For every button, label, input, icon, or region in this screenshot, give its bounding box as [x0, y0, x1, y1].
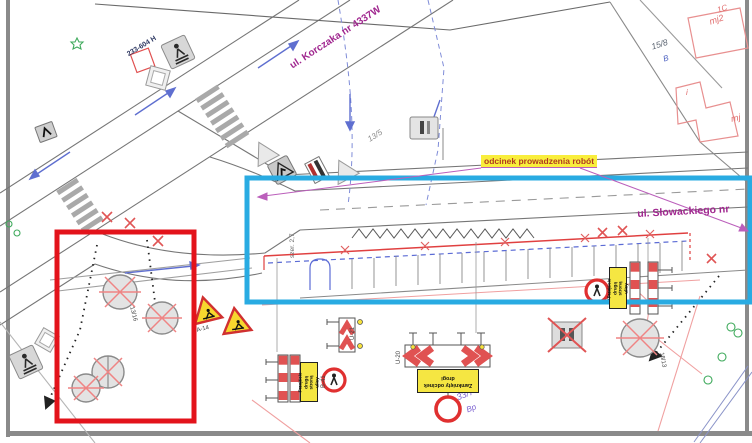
- pedestrian-crossing-sign: [161, 35, 196, 70]
- barrier-planks-left: [266, 355, 300, 402]
- board-line: ulicy: [624, 278, 630, 298]
- board-line: drogi: [418, 374, 478, 381]
- sign-code-u20: U-20: [396, 351, 402, 364]
- barrier-board-u20: [405, 333, 490, 367]
- barrier-planks-right: [630, 262, 672, 314]
- building-label-i: i: [686, 88, 688, 97]
- sign-plate-on-post: [410, 117, 443, 160]
- info-board-cross-other-side-left: Przejście drugą stroną ulicy: [300, 362, 318, 402]
- board-line: ulicy: [315, 372, 321, 392]
- work-section-label: odcinek prowadzenia robót: [481, 155, 597, 168]
- pedestrian-crossing-sign: [9, 345, 44, 380]
- roadworks-triangle-a14: [220, 306, 251, 334]
- traffic-arrows: [30, 41, 440, 273]
- sign-to-remove-crossed: [548, 318, 586, 352]
- no-pedestrians-sign-b41: [586, 280, 608, 302]
- arrow-sign-small: [35, 121, 57, 142]
- board-line: drugą stroną: [612, 278, 623, 298]
- chevron-panel-u21: [327, 318, 363, 352]
- zebra-crossings: [56, 85, 249, 233]
- info-board-closed-section: Zamknięty odcinek drogi: [417, 369, 479, 393]
- temporary-devices: [189, 262, 672, 421]
- board-line: Zamknięty odcinek: [418, 381, 478, 388]
- board-line: drugą stroną: [303, 372, 314, 392]
- info-board-cross-other-side-right: Przejście drugą stroną ulicy: [609, 267, 627, 309]
- tree-crossed: [142, 302, 182, 334]
- board-line: Przejście: [607, 278, 613, 298]
- existing-signs: [9, 35, 586, 380]
- plan-linework: [0, 0, 752, 443]
- sign-code-u21: U-21: [350, 327, 356, 340]
- building-label-mj: mj: [730, 112, 741, 124]
- sign-code-b41-left: B-41: [321, 375, 327, 388]
- traffic-organization-plan: ul. Korczaka nr 4337W ul. Słowackiego nr…: [0, 0, 752, 443]
- tree-crossed: [99, 275, 141, 309]
- work-zone-box: [247, 178, 750, 302]
- work-zone-fencing: [262, 229, 748, 305]
- width-note: szer. 2,7: [289, 233, 296, 258]
- board-line: Przejście: [298, 372, 304, 392]
